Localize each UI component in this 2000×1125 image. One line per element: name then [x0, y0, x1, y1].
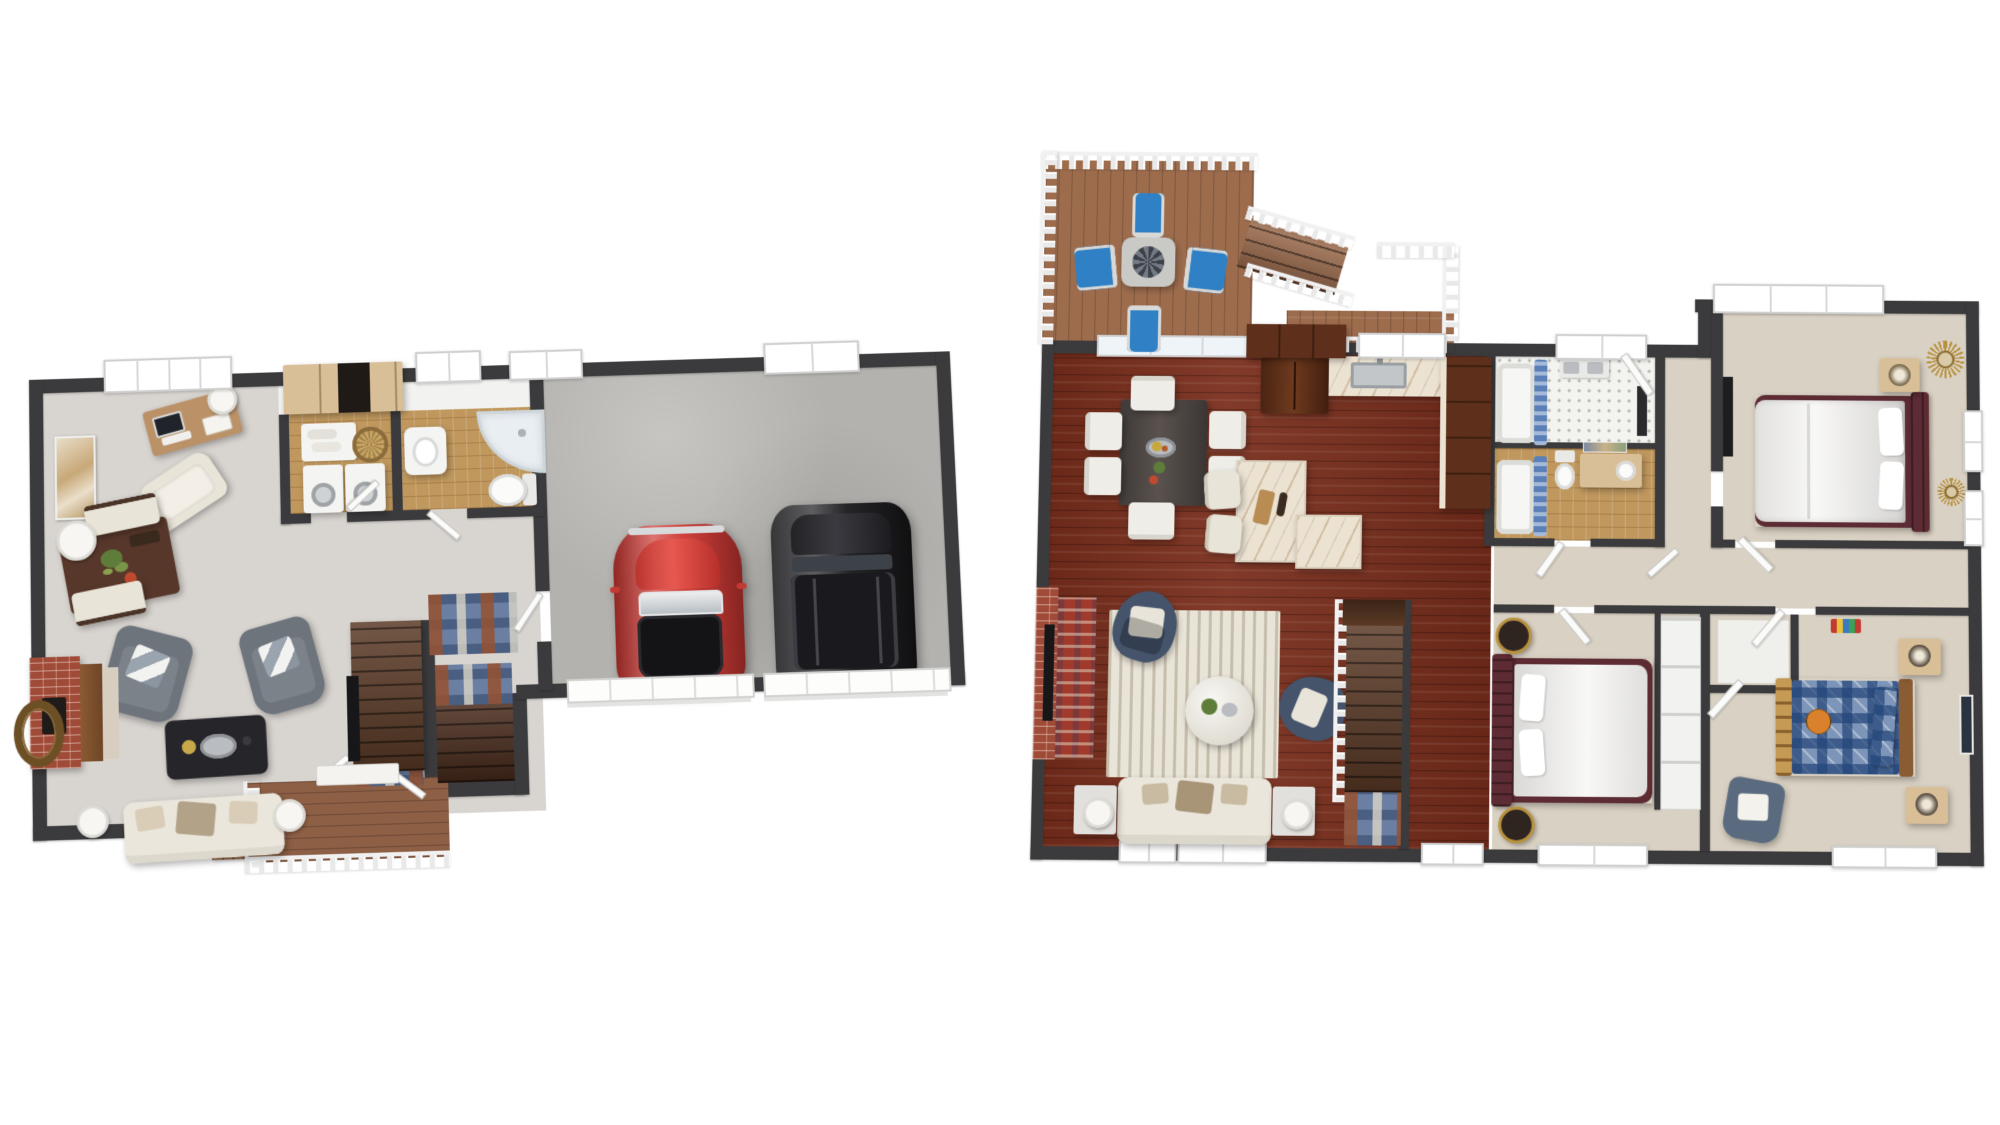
closet2-doors: [1660, 617, 1701, 810]
kitchen-cabinet-run: [1439, 357, 1491, 509]
stair-banister: [1343, 599, 1406, 626]
laundry-upper-cabinets: [283, 361, 404, 414]
dining-chair: [1128, 502, 1175, 539]
bedroom3-rug: [1831, 619, 1861, 633]
cockpit: [637, 614, 724, 679]
hood: [634, 537, 720, 590]
wall-garage-divider-b: [537, 641, 553, 690]
wall-bedroom-divider: [1700, 614, 1710, 851]
bed-pillow: [1519, 674, 1547, 722]
master-side-window-1: [1963, 410, 1984, 472]
range-hood-slot: [338, 362, 371, 412]
sofa-pillow: [1220, 783, 1248, 805]
side-mirror-left: [610, 587, 620, 593]
media-console: [316, 763, 399, 786]
sofa-pillow: [134, 805, 165, 832]
candle: [242, 736, 252, 746]
pedestal-sink: [404, 426, 447, 475]
wall-laundry-bottom-a: [281, 513, 311, 524]
master-bed: [1755, 395, 1916, 528]
kitchen-upper-cabinets: [1246, 324, 1346, 358]
bath1-window: [1555, 334, 1647, 360]
flower-vase: [1153, 461, 1165, 473]
nightstand-lamp: [1915, 793, 1937, 816]
kitchen-sink: [1351, 362, 1407, 388]
den-window: [103, 356, 232, 394]
sofa-pillow: [1141, 783, 1169, 805]
bedroom2-bed: [1495, 658, 1652, 804]
wall-hall-bottom-c: [1816, 607, 1969, 616]
deck-chair-west: [1074, 244, 1118, 291]
table-lamp: [1083, 797, 1114, 828]
wall-hall-top-c: [1711, 539, 1735, 547]
bath-window-1: [415, 350, 482, 384]
suv-roof-rails: [813, 577, 883, 666]
bed-headboard: [1911, 392, 1930, 532]
sofa-pillow: [229, 801, 258, 824]
sink-basin: [1587, 362, 1603, 374]
red-hearth-rug: [1055, 597, 1097, 757]
side-mirror-right: [736, 583, 746, 589]
living-window-1: [1118, 841, 1176, 864]
sunburst-mirror-large: [1926, 341, 1964, 379]
bathtub-1: [1497, 363, 1535, 443]
toilet-bowl: [1555, 463, 1575, 489]
bed-pillow: [1878, 407, 1905, 456]
stair-hall-window: [1421, 843, 1484, 866]
kitchen-window: [1358, 333, 1446, 359]
towel-roll: [307, 429, 337, 440]
first-floor-plan: [9, 290, 974, 882]
master-window: [1713, 284, 1884, 315]
deck-chair-south: [1127, 305, 1162, 352]
deck-chair-north: [1132, 193, 1165, 237]
bedroom3-nightstand-bottom: [1905, 787, 1948, 824]
black-suv: [770, 501, 918, 686]
deck-chair-east: [1182, 247, 1228, 295]
wine-bottle: [1276, 492, 1288, 517]
round-nightstand: [1498, 806, 1535, 843]
kitchen-island-wing: [1295, 514, 1362, 569]
decor-bowl: [1221, 703, 1237, 717]
nightstand-lamp: [1889, 364, 1911, 386]
bedroom3-armchair: [1720, 775, 1786, 846]
round-nightstand: [1495, 617, 1531, 654]
shower-curtain-2: [1533, 456, 1546, 536]
outdoor-table: [1121, 237, 1176, 287]
bathtub-2: [1496, 460, 1535, 534]
gold-teapot: [182, 739, 197, 754]
sunburst-mirror-small: [1937, 478, 1965, 506]
hallway-floor: [1494, 546, 1969, 610]
cutting-board: [1252, 489, 1275, 526]
hall-rug: [428, 592, 518, 655]
master-side-window-2: [1963, 490, 1984, 546]
chair-pillow: [1290, 686, 1329, 729]
vanity-sink: [1580, 453, 1642, 487]
staircase-up: [350, 620, 424, 772]
plant-tray: [1201, 698, 1217, 714]
bed-footboard: [1776, 678, 1792, 776]
sink-basin: [1563, 362, 1579, 374]
island-stool: [1204, 514, 1243, 555]
fridge-door-split: [1293, 362, 1296, 410]
side-table-left: [1073, 785, 1117, 834]
stairwell-down: [1345, 626, 1403, 793]
shower-drain: [518, 429, 526, 437]
bed-headboard-wood: [1899, 679, 1914, 777]
fireplace-hearth: [102, 667, 119, 759]
toilet-2: [1553, 450, 1577, 490]
balcony-railing-right: [1442, 246, 1459, 341]
double-sink: [1559, 358, 1609, 378]
wall-jog: [1698, 299, 1711, 357]
toilet-bowl: [488, 474, 527, 507]
wall-bath-right: [1655, 357, 1665, 547]
red-flower: [1149, 475, 1158, 484]
wall-hall-bottom-a: [1494, 604, 1554, 612]
bed-pillow: [1518, 728, 1545, 776]
shower-curtain-1: [1534, 360, 1547, 446]
living-sofa: [1117, 777, 1272, 845]
bedroom3-bed: [1776, 678, 1916, 777]
red-classic-car: [612, 523, 747, 696]
dining-chair: [1209, 411, 1247, 449]
washer: [303, 464, 344, 513]
dining-chair: [1085, 412, 1123, 450]
second-floor-plan: [1025, 146, 1984, 879]
sofa-blanket: [1175, 780, 1215, 815]
armchair-pillow: [1737, 793, 1768, 821]
wall-hall-top-d: [1775, 540, 1968, 549]
wall-hall-top-b: [1591, 539, 1665, 548]
staircase-down: [436, 703, 515, 783]
bed-headboard: [1491, 654, 1512, 807]
washer-door: [311, 483, 336, 508]
toilet: [488, 469, 539, 510]
wall-entry-right: [512, 693, 529, 795]
stair-runner-rug: [1344, 792, 1401, 846]
closet3-interior: [1718, 620, 1789, 683]
balcony-railing-upper: [1377, 242, 1455, 258]
fireplace-console: [80, 664, 103, 762]
open-book: [202, 411, 234, 436]
stair-landing-rug: [435, 663, 513, 706]
garage-window: [763, 340, 860, 375]
bedroom3-window: [1832, 846, 1938, 869]
bedroom2-window: [1537, 844, 1648, 867]
windshield: [638, 590, 723, 617]
wall-hall-top-a: [1494, 538, 1554, 546]
dining-chair: [1130, 376, 1175, 411]
duvet-fold: [1807, 403, 1810, 519]
plant-centerpiece: [99, 548, 124, 570]
bath2-art: [1583, 442, 1627, 453]
kitchen-counter: [1329, 356, 1444, 397]
bedroom3-wall-art: [1959, 695, 1974, 755]
sink-basin: [412, 437, 439, 468]
dining-table: [1119, 399, 1208, 505]
island-stool: [1203, 470, 1241, 510]
decor-tray: [129, 530, 161, 548]
wall-hall-bottom-b: [1594, 605, 1775, 614]
refrigerator: [1260, 358, 1329, 414]
upper-hall-floor: [1665, 358, 1711, 548]
table-lamp: [1281, 799, 1312, 830]
bedroom3-nightstand-top: [1898, 638, 1941, 675]
bed-pillow: [1878, 461, 1904, 510]
basketball: [1806, 709, 1831, 735]
suv-windshield: [792, 554, 893, 572]
fireplace2-tv: [1043, 624, 1055, 720]
dining-chair: [1084, 457, 1122, 495]
folded-towels: [301, 422, 357, 461]
nightstand-lamp: [1908, 645, 1930, 667]
side-table-right: [1272, 786, 1315, 835]
master-nightstand: [1880, 358, 1920, 392]
vanity-basin: [1616, 461, 1636, 481]
patio-umbrella: [1132, 246, 1164, 278]
master-tv-dresser: [1723, 377, 1733, 457]
tv-panel: [346, 676, 360, 762]
wall-laundry-left: [279, 414, 291, 524]
towel-roll: [311, 442, 341, 453]
sofa-blanket: [175, 801, 216, 837]
deck-railing-top: [1041, 151, 1257, 170]
coffee-table: [164, 714, 268, 780]
bath-window-2: [509, 349, 584, 381]
wall-master-left-a: [1711, 312, 1723, 471]
sofa: [123, 792, 285, 864]
toilet-tank: [1555, 450, 1575, 462]
suv-hood: [790, 512, 892, 555]
serving-tray: [200, 733, 238, 760]
floor-plan-render: [0, 0, 2000, 1125]
